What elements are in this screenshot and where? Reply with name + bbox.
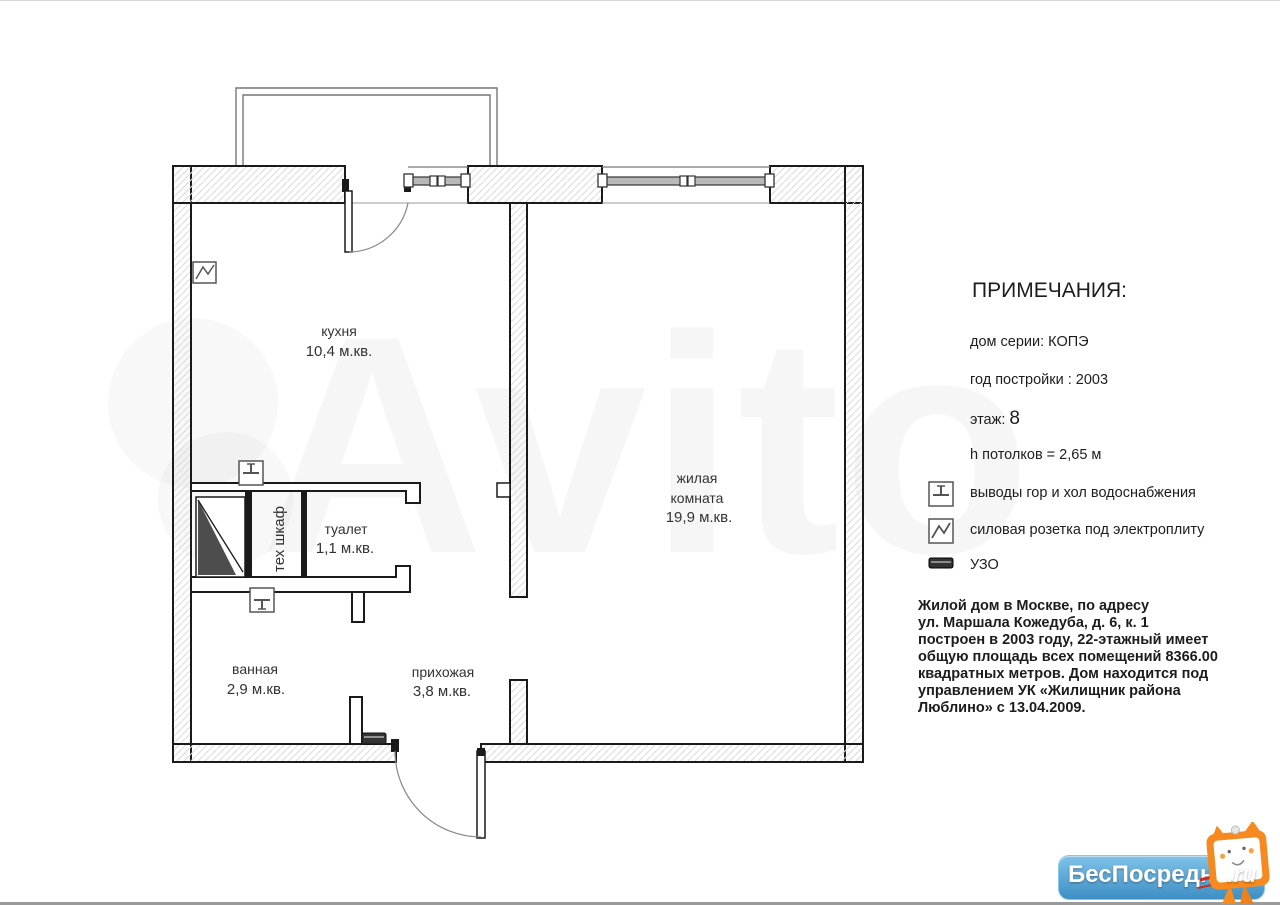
cabinet-divider-2: [301, 491, 307, 577]
description-line: Люблино» с 13.04.2009.: [918, 700, 1218, 717]
wall-bottom-left: [173, 744, 396, 762]
living-label-2: комната: [671, 490, 724, 506]
kitchen-area: 10,4 м.кв.: [306, 343, 373, 360]
living-area: 19,9 м.кв.: [666, 509, 733, 526]
description-line: управлением УК «Жилищник района: [918, 683, 1218, 700]
bath-wall-upper: [352, 592, 364, 622]
description-line: Жилой дом в Москве, по адресу: [918, 598, 1218, 615]
door-swing-arc: [349, 203, 408, 252]
building-description: Жилой дом в Москве, по адресу ул. Маршал…: [918, 598, 1218, 717]
living-label-1: жилая: [677, 470, 718, 486]
power-socket-symbol: [193, 262, 216, 283]
door-jamb: [342, 179, 349, 192]
door-swing-arc: [395, 751, 481, 837]
wall-top-left: [173, 166, 345, 203]
rcd-icon: [928, 557, 954, 569]
water-outlet-symbol-bath: [250, 588, 274, 612]
legend-label-water: выводы гор и хол водоснабжения: [970, 485, 1196, 501]
legend-label-rcd: УЗО: [970, 557, 999, 573]
wall-bottom-right: [481, 744, 863, 762]
besposrednika-logo-suffix: .ru: [1227, 861, 1256, 888]
kitchen-window: [404, 167, 470, 187]
notes-title: ПРИМЕЧАНИЯ:: [972, 279, 1127, 303]
entrance-door: [391, 739, 485, 838]
water-outlets-icon: [928, 481, 954, 507]
floor-plan: кухня 10,4 м.кв. жилая комната 19,9 м.кв…: [0, 0, 900, 905]
description-line: ул. Маршала Кожедуба, д. 6, к. 1: [918, 615, 1218, 632]
description-line: общую площадь всех помещений 8366.00: [918, 649, 1218, 666]
note-year: год постройки : 2003: [970, 372, 1108, 388]
power-socket-icon: [928, 518, 954, 544]
page: { "plan": { "rooms": { "kitchen": { "nam…: [0, 0, 1280, 905]
kitchen-label: кухня: [321, 323, 357, 339]
water-outlet-symbol-kitchen: [239, 461, 263, 485]
description-line: построен в 2003 году, 22-этажный имеет: [918, 632, 1218, 649]
hall-label: прихожая: [412, 664, 474, 680]
wall-right: [845, 166, 863, 762]
bath-area: 2,9 м.кв.: [227, 681, 285, 698]
wall-stub: [497, 483, 510, 497]
floor-value: 8: [1009, 408, 1020, 429]
legend-label-socket: силовая розетка под электроплиту: [970, 522, 1204, 538]
hall-area: 3,8 м.кв.: [413, 683, 471, 700]
note-series: дом серии: КОПЭ: [970, 334, 1089, 350]
techcab-label: тех шкаф: [271, 506, 288, 572]
cabinet-divider-1: [245, 491, 252, 577]
note-floor: этаж: 8: [970, 408, 1020, 430]
bath-wall-lower: [350, 697, 362, 744]
toilet-label: туалет: [324, 521, 368, 537]
door-jamb: [391, 739, 399, 752]
living-window: [598, 167, 774, 203]
note-ceiling: h потолков = 2,65 м: [970, 447, 1101, 463]
rcd-symbol: [362, 733, 386, 744]
bath-label: ванная: [232, 661, 278, 677]
balcony-outline: [236, 88, 497, 166]
balcony-door: [342, 179, 468, 252]
door-hinge: [477, 748, 485, 756]
floor-label: этаж:: [970, 412, 1005, 428]
wall-top-middle: [468, 166, 602, 203]
tech-cabinet: [196, 491, 307, 577]
wall-left: [173, 166, 191, 762]
door-leaf: [477, 751, 485, 838]
description-line: квадратных метров. Дом находится под: [918, 666, 1218, 683]
divider-wall: [510, 203, 527, 744]
toilet-area: 1,1 м.кв.: [316, 540, 374, 557]
door-leaf: [345, 191, 352, 252]
